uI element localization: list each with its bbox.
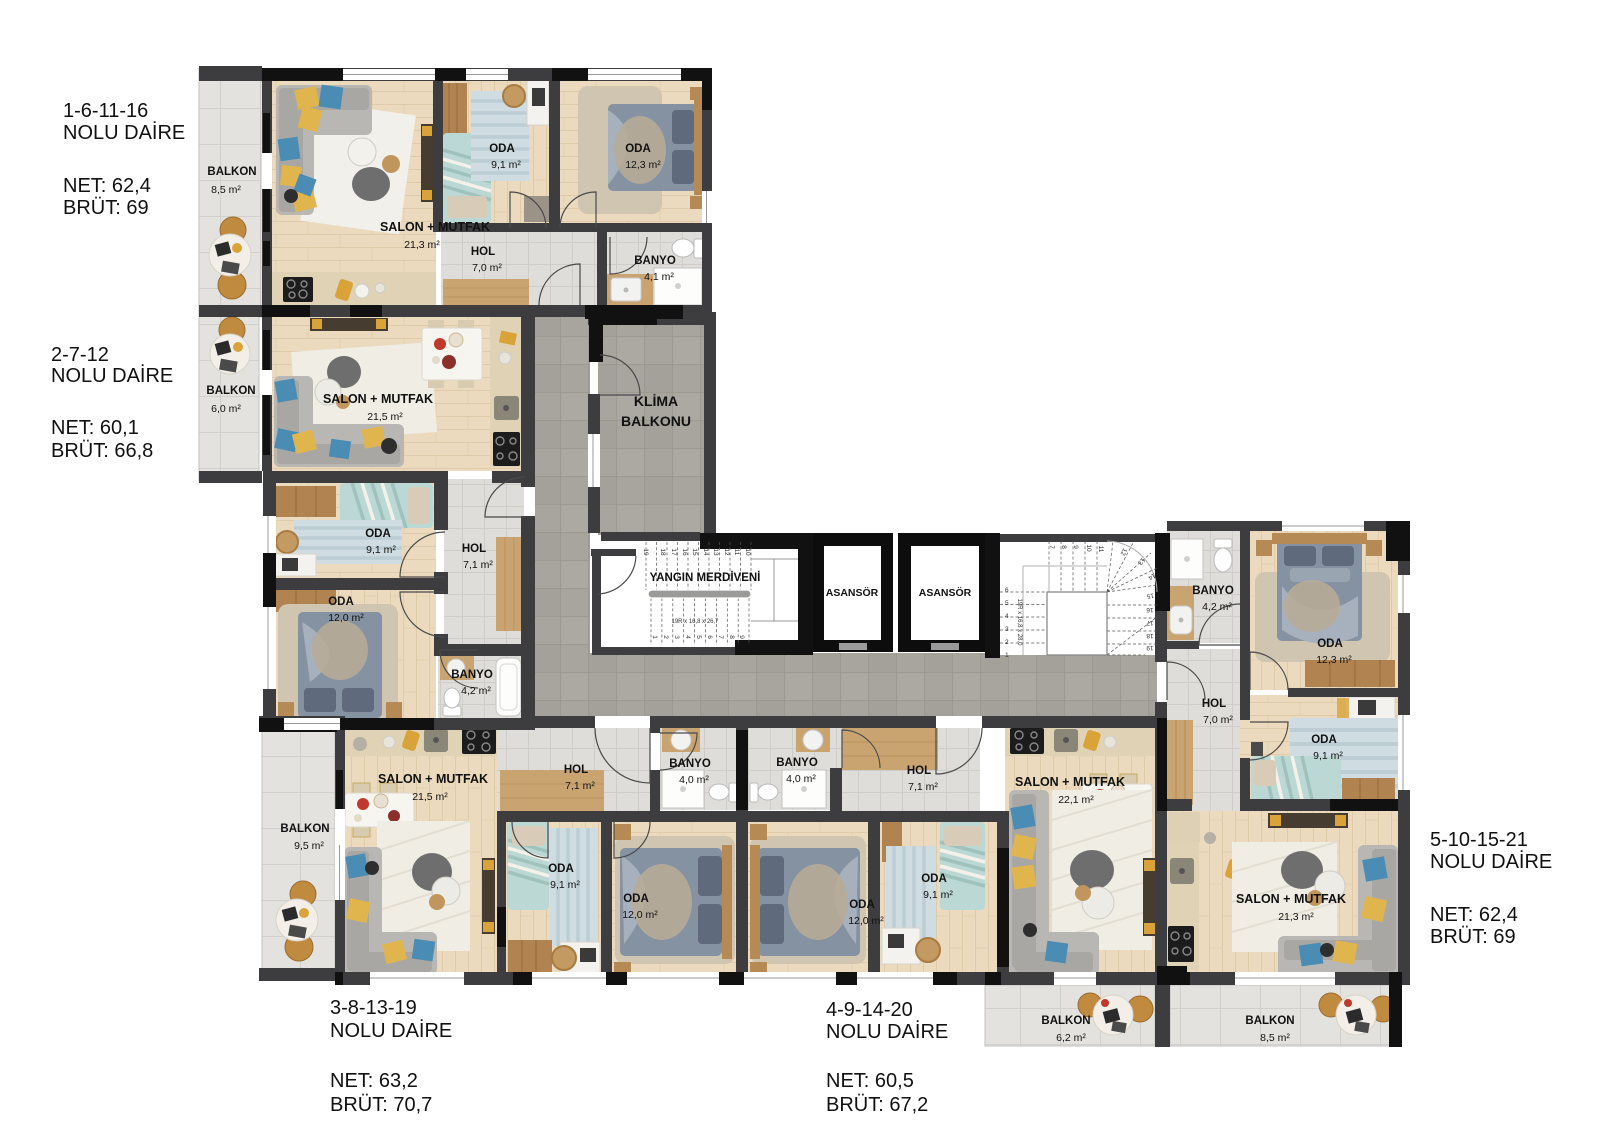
svg-text:KLİMA: KLİMA — [634, 393, 678, 409]
svg-text:6,0 m²: 6,0 m² — [211, 403, 241, 415]
svg-text:9: 9 — [1072, 545, 1079, 549]
svg-text:BANYO: BANYO — [669, 758, 711, 770]
svg-text:ODA: ODA — [623, 893, 649, 905]
svg-text:ODA: ODA — [849, 899, 875, 911]
svg-text:16: 16 — [681, 548, 688, 556]
svg-text:9,1 m²: 9,1 m² — [923, 889, 953, 901]
svg-text:ASANSÖR: ASANSÖR — [919, 586, 972, 599]
svg-text:SALON + MUTFAK: SALON + MUTFAK — [380, 220, 490, 234]
svg-text:13: 13 — [712, 548, 719, 556]
svg-text:21,5 m²: 21,5 m² — [367, 411, 403, 423]
svg-text:ODA: ODA — [489, 143, 515, 155]
svg-text:BALKON: BALKON — [1041, 1015, 1090, 1027]
svg-text:1: 1 — [1005, 652, 1009, 659]
svg-text:19R x 16,8 x 28,0: 19R x 16,8 x 28,0 — [1016, 598, 1022, 646]
svg-text:4: 4 — [684, 635, 691, 639]
svg-text:1-6-11-16: 1-6-11-16 — [63, 100, 148, 122]
svg-text:BRÜT: 69: BRÜT: 69 — [1430, 926, 1516, 948]
svg-text:5: 5 — [695, 635, 702, 639]
svg-text:NET: 60,5: NET: 60,5 — [826, 1070, 914, 1092]
svg-text:ODA: ODA — [1311, 734, 1337, 746]
svg-text:2: 2 — [662, 635, 669, 639]
svg-text:BALKONU: BALKONU — [621, 413, 691, 429]
svg-text:4,0 m²: 4,0 m² — [786, 773, 816, 785]
svg-text:NET: 63,2: NET: 63,2 — [330, 1070, 418, 1092]
svg-text:NOLU DAİRE: NOLU DAİRE — [63, 121, 185, 144]
svg-text:4,2 m²: 4,2 m² — [461, 685, 491, 697]
svg-text:7: 7 — [1048, 545, 1055, 549]
svg-text:NET: 62,4: NET: 62,4 — [1430, 904, 1518, 926]
svg-text:8,5 m²: 8,5 m² — [211, 184, 241, 196]
svg-text:4,0 m²: 4,0 m² — [679, 774, 709, 786]
svg-text:10: 10 — [744, 548, 751, 556]
svg-text:14: 14 — [702, 548, 709, 556]
svg-text:NOLU DAİRE: NOLU DAİRE — [330, 1019, 452, 1042]
svg-text:6: 6 — [706, 635, 713, 639]
svg-text:9,1 m²: 9,1 m² — [550, 879, 580, 891]
svg-text:19: 19 — [1146, 644, 1154, 651]
svg-text:7,0 m²: 7,0 m² — [472, 262, 502, 274]
svg-text:BRÜT: 66,8: BRÜT: 66,8 — [51, 440, 153, 462]
svg-text:12,0 m²: 12,0 m² — [622, 909, 658, 921]
svg-text:8,5 m²: 8,5 m² — [1260, 1032, 1290, 1044]
svg-text:1: 1 — [651, 635, 658, 639]
svg-text:19: 19 — [642, 548, 649, 556]
svg-text:9: 9 — [738, 635, 745, 639]
svg-text:9,1 m²: 9,1 m² — [366, 544, 396, 556]
svg-text:SALON + MUTFAK: SALON + MUTFAK — [378, 772, 488, 786]
svg-text:12,0 m²: 12,0 m² — [848, 915, 884, 927]
svg-text:7,1 m²: 7,1 m² — [565, 780, 595, 792]
svg-text:11: 11 — [733, 549, 740, 556]
svg-text:BRÜT: 70,7: BRÜT: 70,7 — [330, 1094, 432, 1116]
svg-text:HOL: HOL — [564, 764, 588, 776]
svg-text:BRÜT: 67,2: BRÜT: 67,2 — [826, 1094, 928, 1116]
svg-text:21,3 m²: 21,3 m² — [404, 239, 440, 251]
svg-text:3: 3 — [673, 635, 680, 639]
svg-text:12,0 m²: 12,0 m² — [328, 612, 364, 624]
svg-text:ODA: ODA — [921, 873, 947, 885]
svg-text:17: 17 — [670, 548, 677, 556]
svg-text:HOL: HOL — [462, 543, 486, 555]
svg-text:18: 18 — [659, 548, 666, 556]
svg-text:10: 10 — [1085, 544, 1092, 552]
svg-text:BALKON: BALKON — [206, 385, 255, 397]
svg-text:8: 8 — [728, 635, 735, 639]
svg-text:4,2 m²: 4,2 m² — [1202, 601, 1232, 613]
svg-text:SALON + MUTFAK: SALON + MUTFAK — [1236, 892, 1346, 906]
svg-text:11: 11 — [1097, 546, 1104, 553]
svg-text:ODA: ODA — [1317, 638, 1343, 650]
svg-text:9,1 m²: 9,1 m² — [491, 159, 521, 171]
svg-text:17: 17 — [1146, 619, 1154, 626]
svg-text:15: 15 — [691, 548, 698, 556]
svg-text:2-7-12: 2-7-12 — [51, 344, 109, 366]
svg-text:SALON + MUTFAK: SALON + MUTFAK — [323, 392, 433, 406]
svg-text:BALKON: BALKON — [280, 823, 329, 835]
svg-text:YANGIN MERDİVENİ: YANGIN MERDİVENİ — [650, 571, 761, 584]
svg-text:12,3 m²: 12,3 m² — [1316, 654, 1352, 666]
svg-text:HOL: HOL — [471, 246, 495, 258]
svg-text:6: 6 — [1005, 587, 1009, 594]
svg-text:16: 16 — [1146, 606, 1154, 613]
svg-text:NET: 60,1: NET: 60,1 — [51, 417, 139, 439]
svg-text:4-9-14-20: 4-9-14-20 — [826, 999, 913, 1021]
svg-text:6,2 m²: 6,2 m² — [1056, 1032, 1086, 1044]
svg-text:NOLU DAİRE: NOLU DAİRE — [826, 1020, 948, 1043]
svg-text:BANYO: BANYO — [776, 757, 818, 769]
svg-text:NOLU DAİRE: NOLU DAİRE — [51, 364, 173, 387]
svg-text:ODA: ODA — [625, 143, 651, 155]
svg-text:3-8-13-19: 3-8-13-19 — [330, 997, 417, 1019]
svg-text:7,0 m²: 7,0 m² — [1203, 714, 1233, 726]
svg-text:4: 4 — [1005, 613, 1009, 620]
svg-text:7: 7 — [717, 635, 724, 639]
svg-text:NOLU DAİRE: NOLU DAİRE — [1430, 850, 1552, 873]
svg-text:9,1 m²: 9,1 m² — [1313, 750, 1343, 762]
svg-text:HOL: HOL — [907, 765, 931, 777]
svg-text:ODA: ODA — [328, 596, 354, 608]
svg-text:BALKON: BALKON — [207, 166, 256, 178]
svg-text:ODA: ODA — [365, 528, 391, 540]
svg-text:7,1 m²: 7,1 m² — [463, 559, 493, 571]
svg-text:18: 18 — [1146, 632, 1154, 639]
svg-text:ODA: ODA — [548, 863, 574, 875]
svg-text:BRÜT: 69: BRÜT: 69 — [63, 197, 149, 219]
svg-text:5: 5 — [1005, 600, 1009, 607]
svg-text:12,3 m²: 12,3 m² — [625, 159, 661, 171]
svg-text:BALKON: BALKON — [1245, 1015, 1294, 1027]
svg-text:NET: 62,4: NET: 62,4 — [63, 175, 151, 197]
svg-text:4,1 m²: 4,1 m² — [644, 271, 674, 283]
svg-text:22,1 m²: 22,1 m² — [1058, 794, 1094, 806]
svg-text:BANYO: BANYO — [634, 255, 676, 267]
svg-text:5-10-15-21: 5-10-15-21 — [1430, 829, 1528, 851]
svg-text:ASANSÖR: ASANSÖR — [826, 586, 879, 599]
svg-text:BANYO: BANYO — [451, 669, 493, 681]
svg-text:21,3 m²: 21,3 m² — [1278, 911, 1314, 923]
svg-text:SALON + MUTFAK: SALON + MUTFAK — [1015, 775, 1125, 789]
svg-text:7,1 m²: 7,1 m² — [908, 781, 938, 793]
svg-text:9,5 m²: 9,5 m² — [294, 840, 324, 852]
svg-text:BANYO: BANYO — [1192, 585, 1234, 597]
svg-text:2: 2 — [1005, 639, 1009, 646]
svg-text:12: 12 — [723, 548, 730, 556]
svg-text:HOL: HOL — [1202, 698, 1226, 710]
svg-text:8: 8 — [1060, 545, 1067, 549]
svg-text:19R x 16,8 x 26,7: 19R x 16,8 x 26,7 — [671, 619, 719, 625]
svg-text:3: 3 — [1005, 626, 1009, 633]
svg-text:21,5 m²: 21,5 m² — [412, 791, 448, 803]
